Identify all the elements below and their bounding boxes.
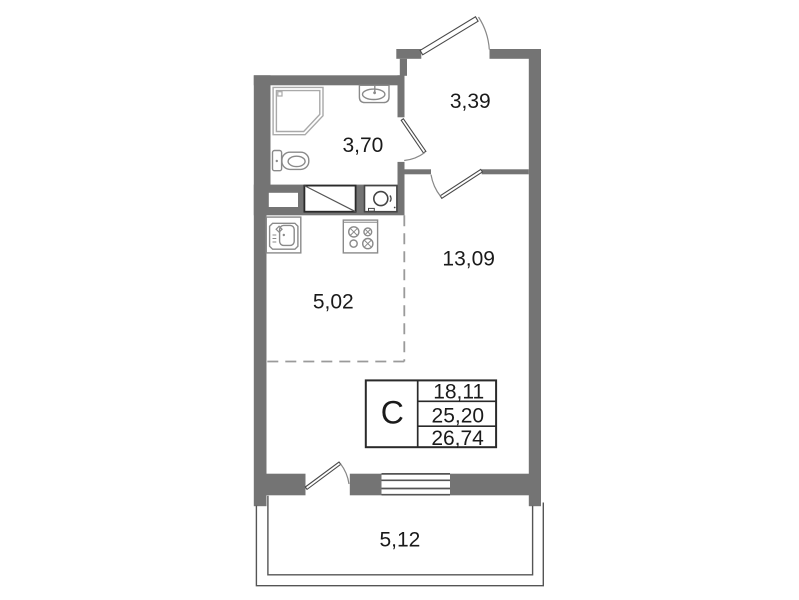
svg-text:13,09: 13,09 — [442, 247, 495, 270]
svg-text:25,20: 25,20 — [432, 405, 485, 428]
svg-text:5,12: 5,12 — [379, 528, 420, 551]
svg-text:18,11: 18,11 — [433, 381, 484, 404]
svg-text:3,39: 3,39 — [450, 90, 491, 113]
svg-text:3,70: 3,70 — [342, 134, 383, 157]
svg-text:26,74: 26,74 — [431, 427, 484, 450]
svg-text:C: C — [381, 395, 404, 431]
svg-text:5,02: 5,02 — [313, 290, 354, 313]
